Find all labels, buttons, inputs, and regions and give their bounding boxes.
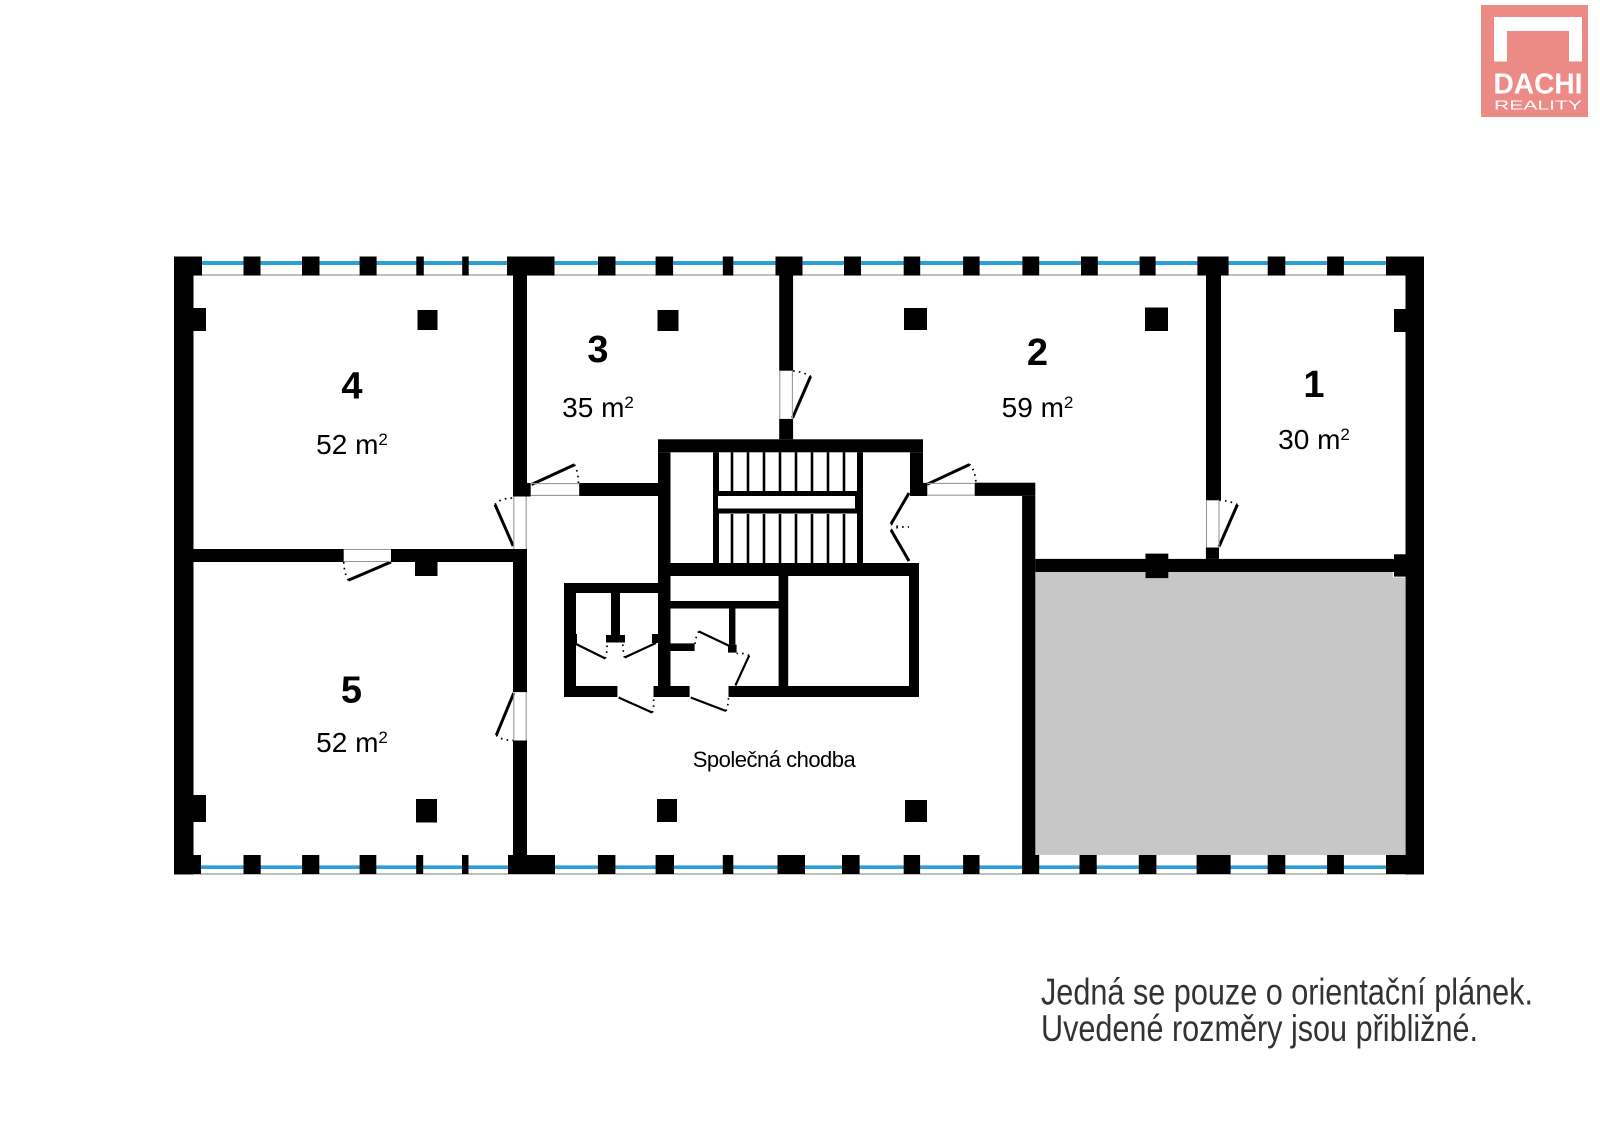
svg-text:4: 4 [341, 366, 362, 408]
svg-text:Jedná se pouze o orientační pl: Jedná se pouze o orientační plánek. [1041, 972, 1533, 1013]
svg-text:Společná chodba: Společná chodba [693, 747, 857, 772]
svg-text:REALITY: REALITY [1494, 98, 1583, 113]
svg-text:59 m2: 59 m2 [1002, 392, 1074, 423]
svg-text:30 m2: 30 m2 [1278, 424, 1350, 455]
svg-text:35 m2: 35 m2 [562, 392, 634, 423]
svg-text:5: 5 [341, 670, 362, 712]
svg-text:3: 3 [587, 329, 608, 371]
svg-text:52 m2: 52 m2 [316, 429, 388, 460]
svg-text:52 m2: 52 m2 [316, 727, 388, 758]
svg-text:2: 2 [1027, 332, 1048, 374]
svg-text:Uvedené rozměry jsou přibližné: Uvedené rozměry jsou přibližné. [1041, 1008, 1478, 1049]
svg-text:1: 1 [1303, 364, 1324, 406]
svg-text:DACHI: DACHI [1494, 69, 1583, 101]
